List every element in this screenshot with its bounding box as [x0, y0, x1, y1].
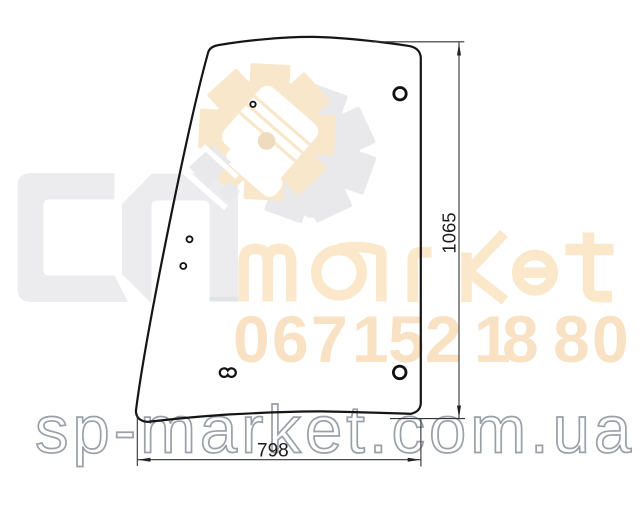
svg-text:8: 8: [553, 302, 590, 376]
svg-text:1065: 1065: [438, 212, 459, 253]
svg-text:0: 0: [233, 302, 270, 376]
svg-text:6: 6: [272, 302, 309, 376]
svg-text:7: 7: [311, 302, 348, 376]
svg-text:798: 798: [257, 441, 289, 462]
svg-text:0: 0: [592, 302, 629, 376]
svg-text:1: 1: [352, 302, 389, 376]
svg-text:5: 5: [388, 302, 425, 376]
svg-text:sp-market.com.ua: sp-market.com.ua: [35, 393, 635, 468]
svg-text:2: 2: [425, 302, 462, 376]
svg-text:8: 8: [502, 302, 539, 376]
